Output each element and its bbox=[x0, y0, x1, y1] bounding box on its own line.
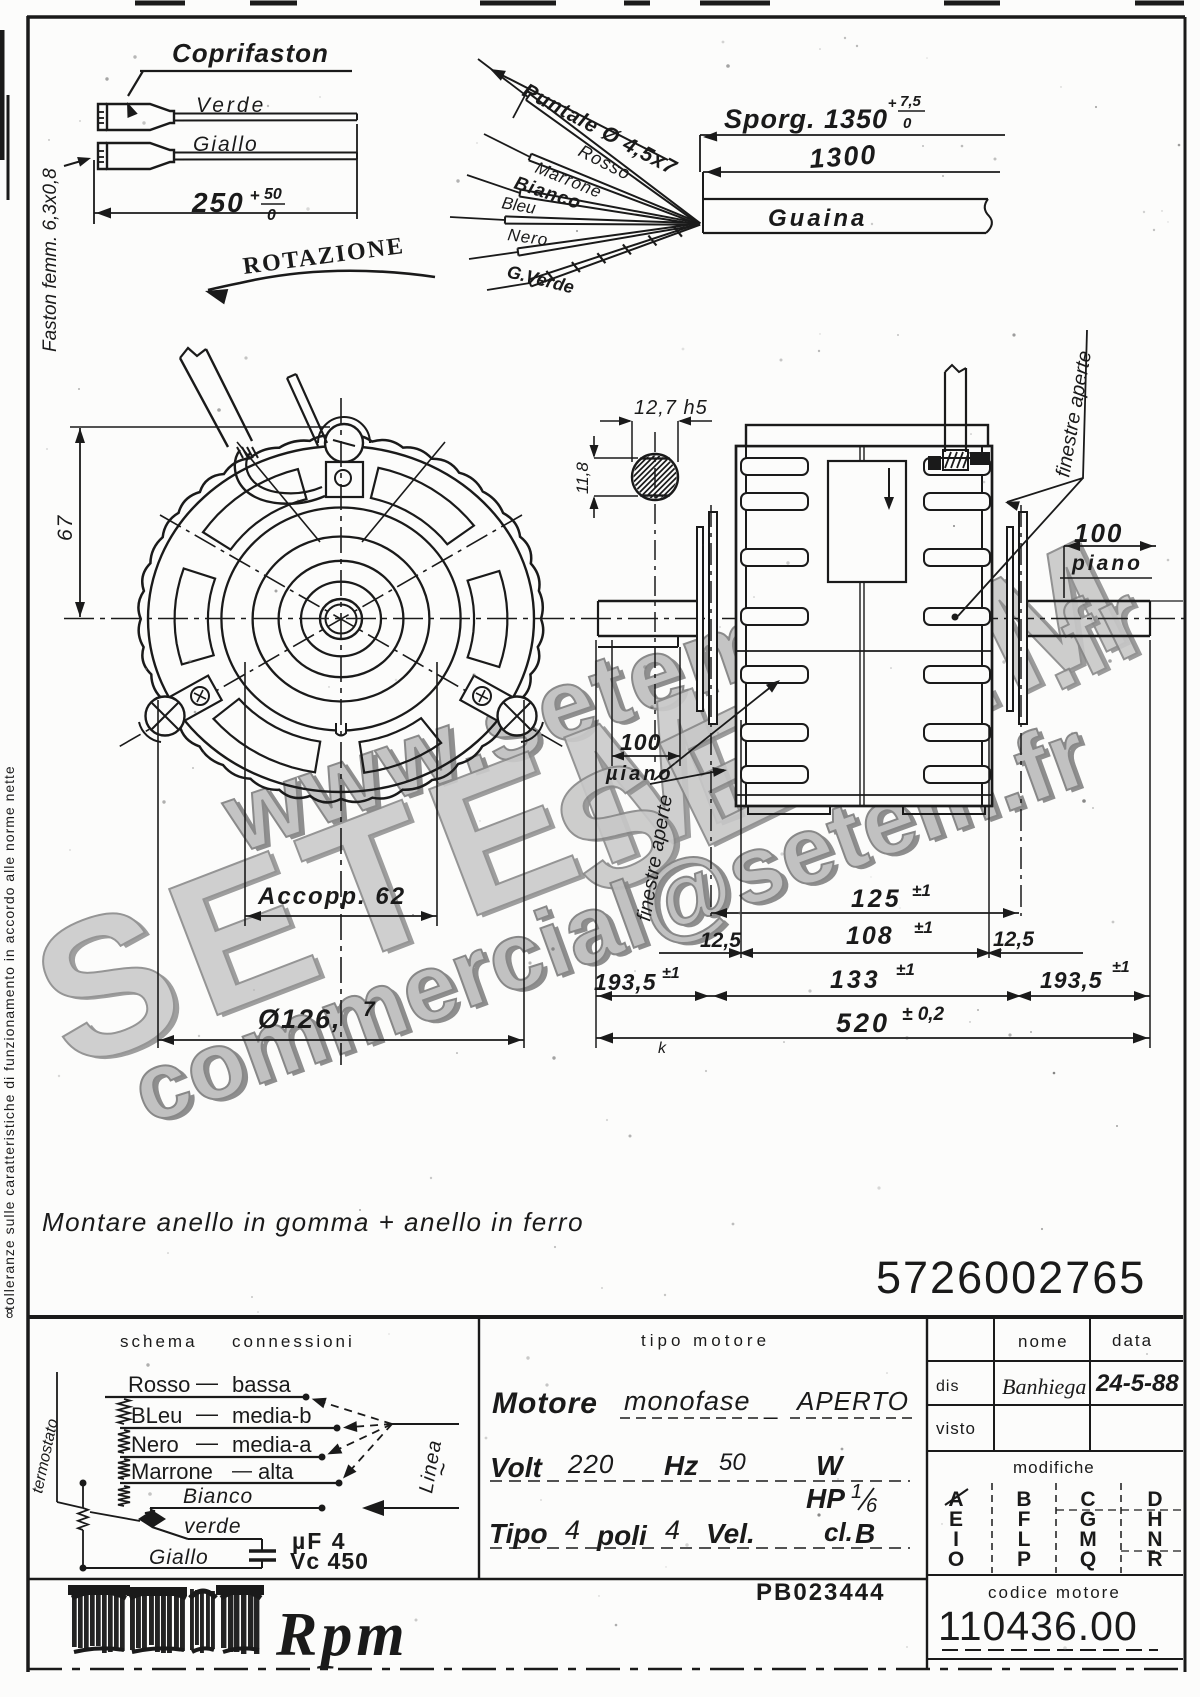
svg-text:Hz: Hz bbox=[664, 1450, 698, 1481]
svg-text:Coprifaston: Coprifaston bbox=[172, 38, 329, 68]
svg-text:Guaina: Guaina bbox=[768, 205, 867, 232]
svg-text:alta: alta bbox=[258, 1459, 294, 1484]
svg-text:Sporg. 1350: Sporg. 1350 bbox=[724, 104, 888, 134]
svg-text:193,5: 193,5 bbox=[594, 969, 657, 995]
svg-text:11,8: 11,8 bbox=[573, 462, 592, 494]
svg-text:Verde: Verde bbox=[196, 94, 266, 117]
svg-text:Nero: Nero bbox=[131, 1432, 179, 1457]
svg-text:visto: visto bbox=[936, 1419, 976, 1438]
svg-text:108: 108 bbox=[846, 922, 894, 950]
svg-text:k: k bbox=[658, 1040, 667, 1057]
svg-text:Motore: Motore bbox=[492, 1387, 598, 1420]
svg-text:—: — bbox=[196, 1430, 218, 1455]
svg-text:Ø126,: Ø126, bbox=[258, 1004, 342, 1034]
svg-text:PB023444: PB023444 bbox=[756, 1579, 885, 1606]
svg-text:Vel.: Vel. bbox=[706, 1518, 755, 1549]
svg-text:poli: poli bbox=[596, 1520, 648, 1551]
svg-text:Volt: Volt bbox=[490, 1452, 544, 1483]
svg-text:APERTO: APERTO bbox=[795, 1386, 909, 1416]
svg-text:media-b: media-b bbox=[232, 1403, 311, 1428]
svg-text:monofase: monofase bbox=[624, 1386, 751, 1416]
svg-text:8: 8 bbox=[6, 1306, 13, 1321]
svg-text:0: 0 bbox=[903, 115, 912, 132]
svg-text:4: 4 bbox=[665, 1515, 680, 1545]
svg-text:50: 50 bbox=[264, 186, 282, 203]
svg-text:7: 7 bbox=[363, 998, 376, 1021]
svg-text:connessioni: connessioni bbox=[232, 1332, 355, 1351]
svg-text:HP: HP bbox=[806, 1483, 845, 1514]
svg-text:Bianco: Bianco bbox=[183, 1485, 253, 1508]
svg-text:O: O bbox=[948, 1548, 964, 1571]
svg-text:125: 125 bbox=[851, 885, 902, 913]
svg-text:Rosso: Rosso bbox=[128, 1372, 190, 1397]
svg-text:schema: schema bbox=[120, 1332, 198, 1351]
svg-text:tipo motore: tipo motore bbox=[641, 1331, 770, 1350]
svg-text:tolleranze sulle caratteristic: tolleranze sulle caratteristiche di funz… bbox=[1, 765, 17, 1310]
svg-text:BLeu: BLeu bbox=[131, 1403, 182, 1428]
svg-text:bassa: bassa bbox=[232, 1372, 291, 1397]
svg-text:+: + bbox=[888, 95, 897, 112]
svg-text:±1: ±1 bbox=[912, 881, 931, 900]
svg-text:±1: ±1 bbox=[914, 918, 933, 937]
svg-text:12,5: 12,5 bbox=[700, 929, 741, 952]
svg-text:modifiche: modifiche bbox=[1013, 1458, 1095, 1477]
svg-text:Vc 450: Vc 450 bbox=[290, 1548, 369, 1574]
svg-text:250: 250 bbox=[191, 187, 245, 218]
svg-text:cl.: cl. bbox=[824, 1517, 853, 1547]
svg-text:—: — bbox=[196, 1401, 218, 1426]
svg-text:Giallo: Giallo bbox=[149, 1546, 209, 1569]
svg-text:12,7 h5: 12,7 h5 bbox=[634, 397, 708, 419]
svg-text:100: 100 bbox=[620, 729, 661, 755]
svg-text:piano: piano bbox=[1071, 552, 1143, 575]
svg-text:—: — bbox=[196, 1370, 218, 1395]
svg-text:P: P bbox=[1017, 1548, 1031, 1571]
svg-text:220: 220 bbox=[567, 1449, 614, 1479]
svg-text:Marrone: Marrone bbox=[131, 1459, 213, 1484]
svg-text:Faston femm. 6,3x0,8: Faston femm. 6,3x0,8 bbox=[40, 168, 61, 352]
svg-text:Banhiega: Banhiega bbox=[1002, 1374, 1086, 1399]
svg-text:verde: verde bbox=[184, 1515, 242, 1538]
svg-text:codice motore: codice motore bbox=[988, 1583, 1121, 1602]
svg-text:—: — bbox=[232, 1460, 252, 1482]
svg-text:24-5-88: 24-5-88 bbox=[1095, 1370, 1179, 1397]
svg-text:Giallo: Giallo bbox=[193, 133, 259, 156]
svg-text:12,5: 12,5 bbox=[993, 928, 1034, 951]
svg-text:7,5: 7,5 bbox=[900, 93, 922, 110]
svg-text:dis: dis bbox=[936, 1378, 959, 1395]
svg-text:Q: Q bbox=[1080, 1548, 1096, 1571]
svg-text:5726002765: 5726002765 bbox=[876, 1252, 1146, 1303]
svg-text:B: B bbox=[855, 1518, 875, 1549]
svg-text:Montare anello in gomma + anel: Montare anello in gomma + anello in ferr… bbox=[42, 1207, 584, 1237]
svg-text:Accopp. 62: Accopp. 62 bbox=[257, 883, 406, 910]
svg-text:_: _ bbox=[763, 1393, 778, 1420]
svg-text:67: 67 bbox=[54, 514, 77, 541]
svg-text:193,5: 193,5 bbox=[1040, 967, 1103, 993]
svg-text:133: 133 bbox=[830, 966, 881, 994]
svg-text:0: 0 bbox=[267, 207, 276, 224]
svg-text:nome: nome bbox=[1018, 1332, 1069, 1351]
svg-text:±1: ±1 bbox=[662, 965, 680, 982]
svg-text:50: 50 bbox=[719, 1449, 746, 1476]
svg-text:100: 100 bbox=[1074, 518, 1123, 548]
svg-text:520: 520 bbox=[836, 1008, 890, 1038]
svg-text:1300: 1300 bbox=[808, 139, 878, 174]
svg-text:±1: ±1 bbox=[1112, 959, 1130, 976]
svg-text:6: 6 bbox=[866, 1495, 878, 1517]
svg-text:4: 4 bbox=[565, 1515, 580, 1545]
svg-text:± 0,2: ± 0,2 bbox=[902, 1004, 945, 1025]
svg-text:±1: ±1 bbox=[896, 960, 915, 979]
svg-text:Tipo: Tipo bbox=[489, 1518, 548, 1549]
svg-text:110436.00: 110436.00 bbox=[938, 1603, 1138, 1649]
svg-text:+: + bbox=[250, 186, 260, 205]
svg-text:Rpm: Rpm bbox=[275, 1601, 409, 1669]
svg-text:data: data bbox=[1112, 1331, 1153, 1350]
svg-text:W: W bbox=[816, 1450, 845, 1481]
svg-text:1: 1 bbox=[851, 1481, 862, 1503]
svg-text:media-a: media-a bbox=[232, 1432, 312, 1457]
